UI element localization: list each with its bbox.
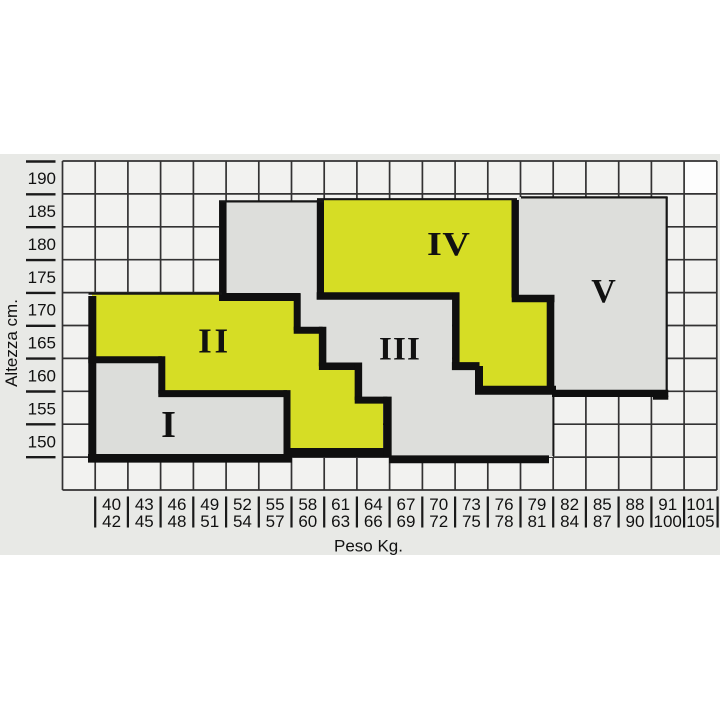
- svg-text:I: I: [161, 404, 176, 446]
- svg-text:Altezza cm.: Altezza cm.: [2, 299, 21, 387]
- svg-text:165: 165: [28, 334, 56, 353]
- svg-text:66: 66: [364, 512, 383, 531]
- svg-text:IV: IV: [427, 225, 470, 263]
- svg-text:V: V: [591, 273, 616, 310]
- svg-text:185: 185: [28, 202, 56, 221]
- svg-text:III: III: [379, 332, 421, 368]
- svg-text:150: 150: [28, 432, 56, 451]
- svg-text:72: 72: [429, 512, 448, 531]
- svg-text:175: 175: [28, 268, 56, 287]
- svg-text:51: 51: [200, 512, 219, 531]
- svg-text:75: 75: [462, 512, 481, 531]
- svg-text:155: 155: [28, 399, 56, 418]
- svg-text:170: 170: [28, 301, 56, 320]
- svg-text:II: II: [198, 322, 231, 361]
- svg-text:63: 63: [331, 512, 350, 531]
- svg-text:160: 160: [28, 367, 56, 386]
- svg-text:87: 87: [593, 512, 612, 531]
- svg-text:60: 60: [298, 512, 317, 531]
- svg-text:45: 45: [135, 512, 154, 531]
- svg-text:81: 81: [527, 512, 546, 531]
- svg-text:48: 48: [168, 512, 187, 531]
- svg-text:84: 84: [560, 512, 579, 531]
- svg-text:42: 42: [102, 512, 121, 531]
- svg-text:180: 180: [28, 235, 56, 254]
- svg-text:78: 78: [495, 512, 514, 531]
- svg-text:105: 105: [686, 512, 714, 531]
- svg-text:54: 54: [233, 512, 252, 531]
- svg-text:90: 90: [626, 512, 645, 531]
- svg-text:69: 69: [397, 512, 416, 531]
- svg-text:190: 190: [28, 169, 56, 188]
- svg-text:100: 100: [654, 512, 682, 531]
- svg-text:Peso Kg.: Peso Kg.: [334, 537, 403, 556]
- svg-text:57: 57: [266, 512, 285, 531]
